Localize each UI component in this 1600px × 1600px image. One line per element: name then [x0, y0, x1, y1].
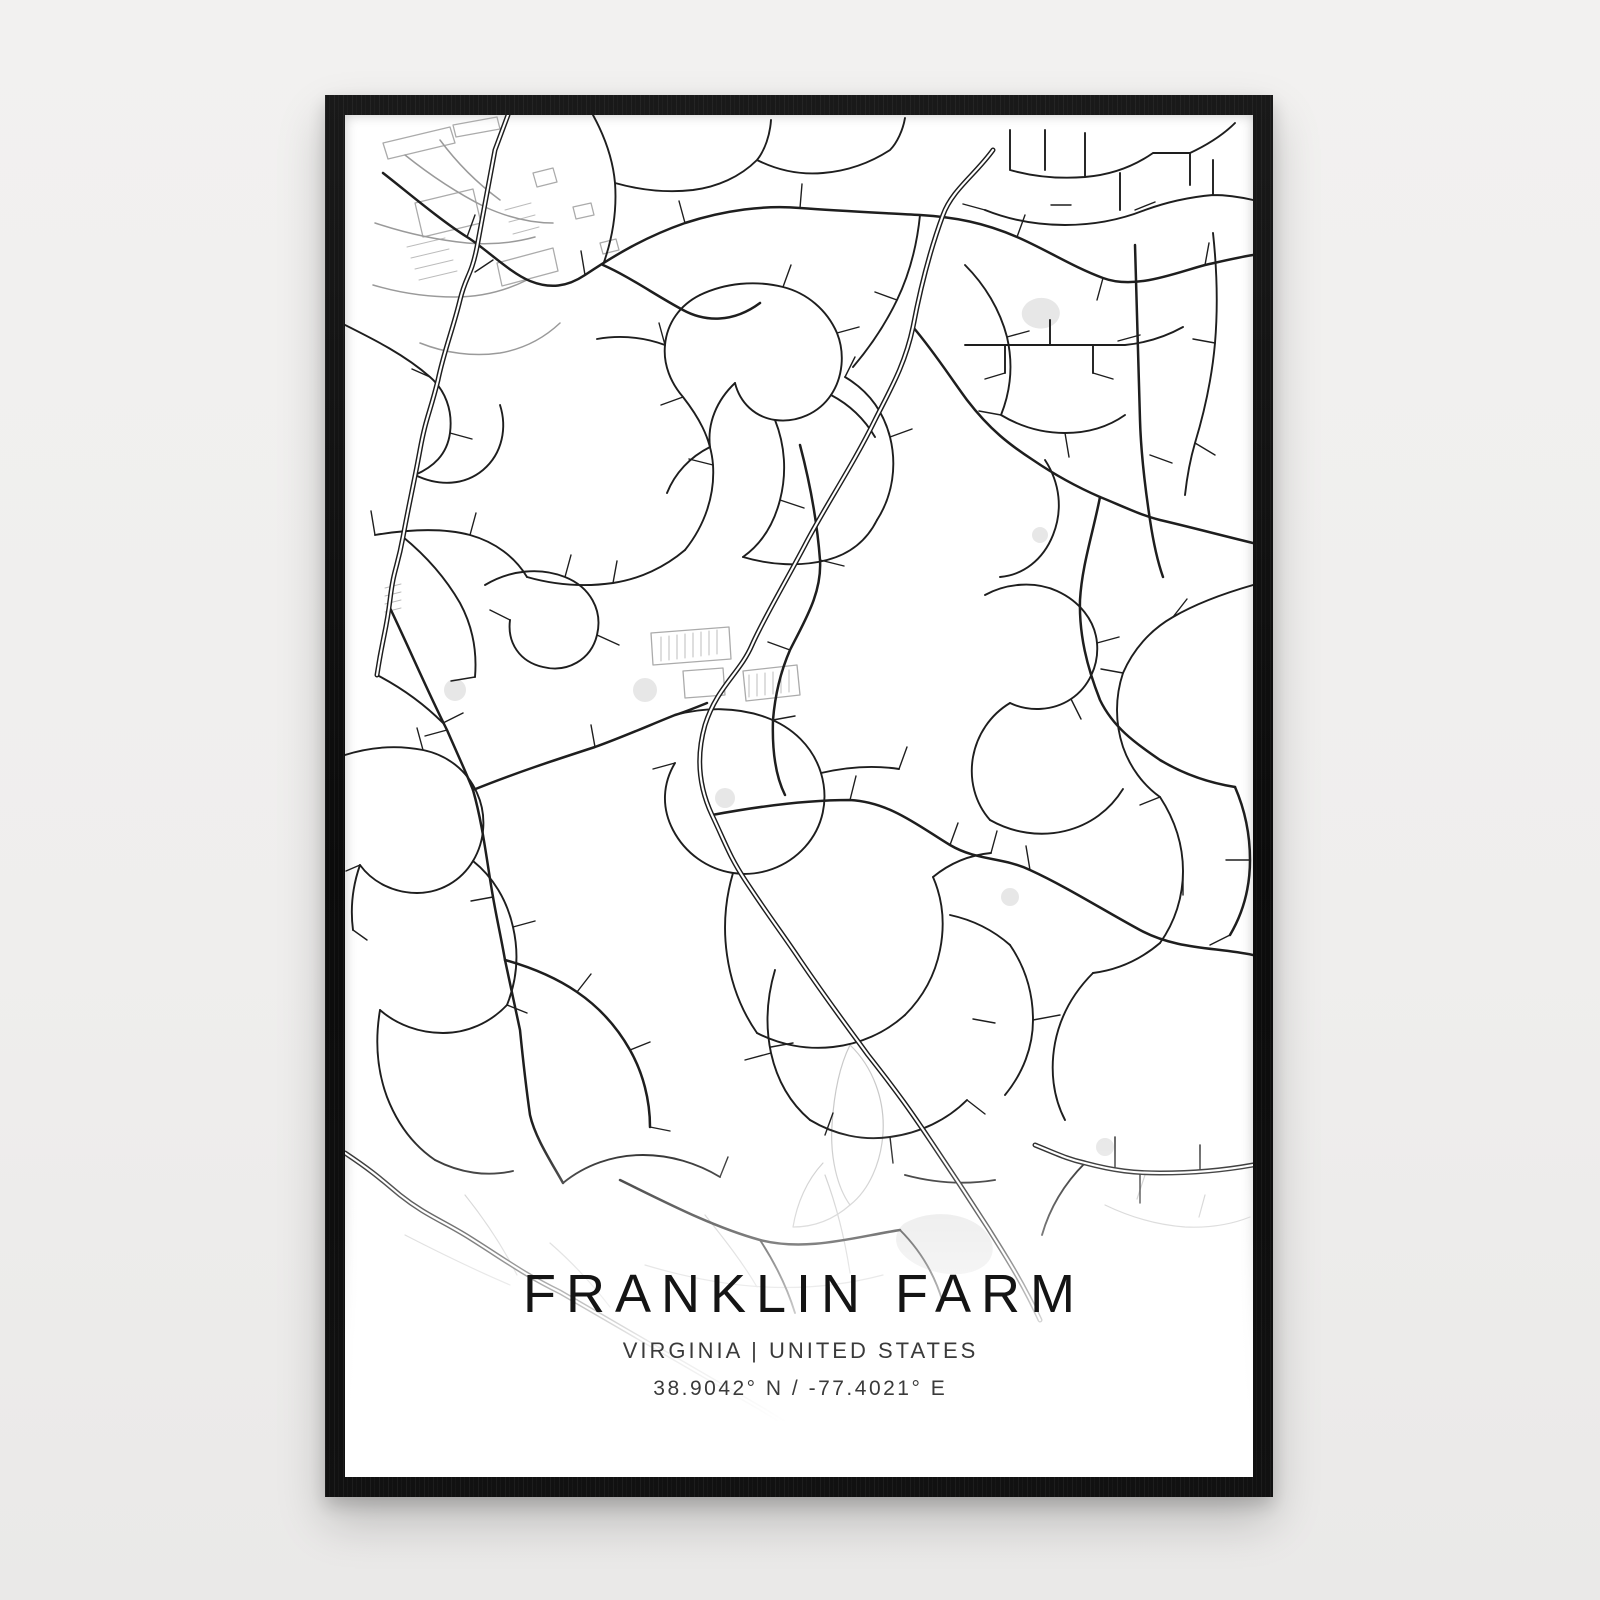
collector-roads-layer-path [390, 608, 563, 1183]
local-roads-layer-path [990, 789, 1123, 834]
ponds-layer-path [1032, 527, 1048, 543]
local-roads-layer-path [972, 703, 1010, 820]
local-roads-layer-path [1093, 943, 1160, 973]
local-roads-layer-path [352, 865, 360, 930]
local-roads-layer-path [1005, 945, 1033, 1095]
buildings-layer-path [453, 117, 500, 137]
major-roads-layer [345, 115, 1253, 1448]
collector-roads-layer-path [712, 800, 1253, 955]
buildings-layer-path [415, 189, 481, 237]
local-roads-layer-path [1042, 1163, 1085, 1235]
collector-roads-layer-path [913, 327, 1253, 543]
local-roads-layer-path [965, 265, 1125, 433]
local-roads-layer-path [743, 420, 784, 557]
major-roads-layer-path [377, 115, 508, 675]
parking-hatches-layer-path [407, 238, 457, 280]
local-roads-layer-path [435, 1160, 513, 1174]
ponds-layer-path [1001, 888, 1019, 906]
buildings-layer-path [383, 127, 455, 159]
stub-roads-layer-path [963, 202, 1215, 463]
parking-hatches-layer-path [661, 630, 717, 661]
ponds-layer-path [633, 678, 657, 702]
local-roads-layer-path [1160, 797, 1183, 943]
trails-layer-path [832, 1045, 884, 1205]
buildings-layer [383, 117, 800, 701]
collector-roads-layer-path [505, 960, 650, 1127]
local-roads-layer-path [665, 709, 825, 874]
local-roads-layer-path [709, 383, 735, 447]
collector-roads-layer [383, 173, 1253, 1245]
collector-roads-layer-path [603, 265, 760, 319]
ponds-layer [444, 298, 1114, 1274]
major-roads-layer-path [700, 150, 1040, 1320]
local-roads-layer-path [743, 520, 877, 564]
local-roads-layer-path [345, 747, 483, 893]
commercial-roads-layer-path [373, 280, 527, 297]
local-roads-layer-path [1123, 585, 1253, 673]
stub-roads-layer-path [371, 369, 619, 681]
poster-coordinates: 38.9042° N / -77.4021° E [345, 1377, 1253, 1401]
collector-roads-layer-path [383, 173, 1253, 286]
buildings-layer-path [651, 627, 731, 698]
trails-layer-path [793, 1163, 850, 1227]
major-roads-layer-path [700, 150, 1040, 1320]
buildings-layer-path [533, 168, 619, 254]
local-roads-layer-path [950, 915, 1010, 945]
commercial-roads-layer-path [405, 140, 553, 223]
local-roads-layer-path [380, 1005, 507, 1033]
local-roads-layer-path [725, 873, 757, 1033]
local-roads-layer-path [1117, 673, 1160, 797]
collector-roads-layer-path [1230, 787, 1250, 935]
parking-hatches-layer-path [385, 203, 539, 612]
local-roads-layer-path [965, 320, 1183, 373]
commercial-roads-layer-path [420, 323, 560, 355]
poster-caption: FRANKLIN FARM VIRGINIA | UNITED STATES 3… [345, 1265, 1253, 1401]
collector-roads-layer-path [1135, 245, 1163, 577]
local-roads-layer-path [890, 1100, 967, 1137]
local-roads-layer-path [527, 550, 685, 585]
local-roads-layer-path [1185, 233, 1217, 495]
stub-roads-layer [346, 184, 1250, 1203]
local-roads-layer-path [821, 767, 899, 773]
collector-roads-layer-path [473, 703, 707, 790]
ponds-layer-path [715, 788, 735, 808]
local-roads-layer-path [403, 537, 475, 677]
local-roads-layer-path [643, 1155, 720, 1177]
parking-hatches-layer-path [749, 670, 789, 697]
ponds-layer-path [444, 679, 466, 701]
commercial-roads-layer-path [375, 223, 535, 244]
local-roads-layer-path [563, 1155, 643, 1183]
poster-title: FRANKLIN FARM [345, 1265, 1253, 1324]
buildings-layer-path [743, 665, 800, 701]
collector-roads-layer-path [620, 1180, 900, 1245]
commercial-roads-layer [373, 140, 560, 355]
local-roads-layer-path [810, 1120, 890, 1138]
ponds-layer-path [1022, 298, 1060, 329]
stub-roads-layer-path [659, 265, 912, 508]
poster-subtitle: VIRGINIA | UNITED STATES [345, 1338, 1253, 1364]
ponds-layer-path [1096, 1138, 1114, 1156]
local-roads-layer-path [1000, 460, 1059, 577]
wall-background: FRANKLIN FARM VIRGINIA | UNITED STATES 3… [0, 0, 1600, 1600]
local-roads-layer-path [665, 295, 714, 550]
local-roads-layer-path [757, 1015, 905, 1048]
local-roads-layer-path [1053, 973, 1093, 1120]
major-roads-layer-path [1035, 1145, 1253, 1173]
poster-frame: FRANKLIN FARM VIRGINIA | UNITED STATES 3… [325, 95, 1273, 1497]
map-poster: FRANKLIN FARM VIRGINIA | UNITED STATES 3… [345, 115, 1253, 1477]
parking-hatches-layer [385, 203, 789, 697]
local-roads-layer-path [597, 337, 875, 493]
local-roads-layer-path [905, 877, 943, 1015]
trails-layer-path [1105, 1175, 1250, 1227]
stub-roads-layer-path [425, 184, 1209, 901]
